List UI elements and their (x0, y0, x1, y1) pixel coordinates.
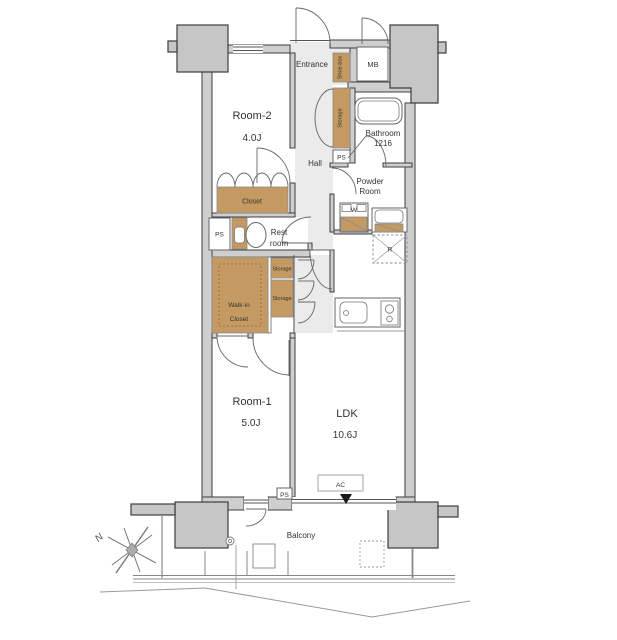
closet-label: Closet (242, 199, 262, 206)
floorplan-drawing: N Room-2 4.0J Entrance Shoe-box MB Stora… (0, 0, 617, 640)
entrance-label: Entrance (296, 60, 329, 69)
bathtub (355, 98, 402, 124)
toilet (246, 223, 266, 248)
ldk-size: 10.6J (333, 430, 357, 441)
closet-door-arc (235, 173, 253, 187)
powder-room-label1: Powder (356, 177, 383, 186)
balcony-door-arc (246, 509, 266, 526)
ldk-name: LDK (336, 408, 358, 420)
ps-room1-label: PS (280, 492, 289, 499)
pillar-bottom-left (175, 502, 228, 548)
wall-room2-right-upper (290, 53, 295, 148)
compass-north-label: N (93, 531, 106, 545)
bathroom-name: Bathroom (366, 129, 401, 138)
pillar-top-left-tab (168, 41, 177, 52)
balcony-equipment (253, 544, 275, 568)
shoe-box-label: Shoe-box (338, 55, 344, 79)
wall-room2-right-lower (290, 183, 295, 217)
compass: N (93, 527, 156, 573)
wall-wic-bottom-1 (212, 333, 217, 338)
toilet-tank (235, 227, 245, 243)
restroom-label1: Rest (271, 228, 288, 237)
hall-label: Hall (308, 159, 322, 168)
room2-name: Room-2 (232, 110, 271, 122)
wic-label1: Walk-in (228, 302, 250, 309)
mb-label: MB (367, 60, 378, 69)
ps-hall-label: PS (337, 155, 346, 162)
wall-bath-bottom-right (383, 163, 412, 167)
fridge-label: R (388, 247, 393, 254)
powder-door-arc (332, 168, 356, 194)
wall-left (202, 45, 212, 502)
balcony-drain (226, 537, 234, 545)
washer-label: W (351, 207, 358, 214)
ground-line (100, 588, 470, 617)
entrance-door-arc (296, 8, 330, 43)
room1-size: 5.0J (242, 418, 261, 429)
restroom-label2: room (270, 239, 289, 248)
wall-closet-bottom (212, 213, 295, 217)
wall-powder-left (330, 194, 334, 232)
wall-nook-right (330, 250, 334, 292)
wall-room1-ldk (290, 338, 295, 497)
wic-door-arc (217, 336, 248, 367)
wall-wic-bottom-3 (290, 333, 295, 338)
closet-door-arc (217, 173, 235, 187)
wall-wic-bottom-2 (248, 333, 253, 338)
closet-door-arc (253, 173, 271, 187)
bathroom-size: 1216 (374, 139, 392, 148)
wall-restroom-bottom (212, 250, 310, 257)
wall-bath-bottom-left (330, 163, 348, 167)
wall-restroom-right (308, 243, 312, 250)
wic-label2: Closet (230, 316, 249, 323)
hall-storage-label: Storage (338, 108, 344, 127)
closet-door-arc (271, 173, 288, 187)
storage2-label: Storage (272, 296, 291, 302)
pillar-top-right-tab (438, 42, 446, 53)
balcony-door-threshold (244, 497, 268, 510)
balcony-equipment-dashed (360, 541, 384, 567)
balcony-label: Balcony (287, 531, 315, 540)
wall-wic-storage-divider (268, 257, 271, 333)
floorplan-page: N Room-2 4.0J Entrance Shoe-box MB Stora… (0, 0, 617, 640)
storage1-label: Storage (272, 267, 291, 273)
pillar-bottom-left-stub (131, 504, 175, 515)
room2-window (233, 45, 263, 53)
ps-restroom-label: PS (215, 232, 224, 239)
powder-room-label2: Room (359, 187, 381, 196)
pillar-bottom-right-stub (438, 506, 458, 517)
wall-storage-bath (350, 88, 355, 163)
room1-door-arc (253, 338, 289, 375)
pillar-top-left (177, 25, 228, 72)
room2-size: 4.0J (243, 133, 262, 144)
room1-name: Room-1 (232, 396, 271, 408)
ac-label: AC (336, 482, 345, 489)
